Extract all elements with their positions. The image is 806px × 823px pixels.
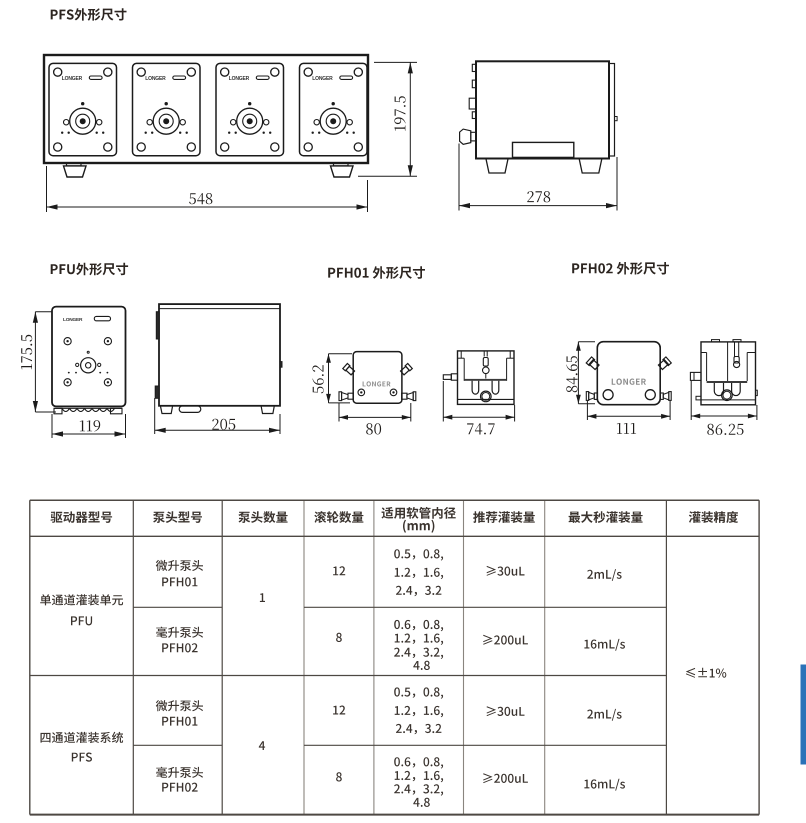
svg-text:LONGER: LONGER — [62, 76, 83, 82]
svg-text:LONGER: LONGER — [63, 317, 83, 323]
svg-text:LONGER: LONGER — [145, 76, 166, 82]
svg-text:LONGER: LONGER — [312, 76, 333, 82]
svg-text:LONGER: LONGER — [229, 76, 250, 82]
